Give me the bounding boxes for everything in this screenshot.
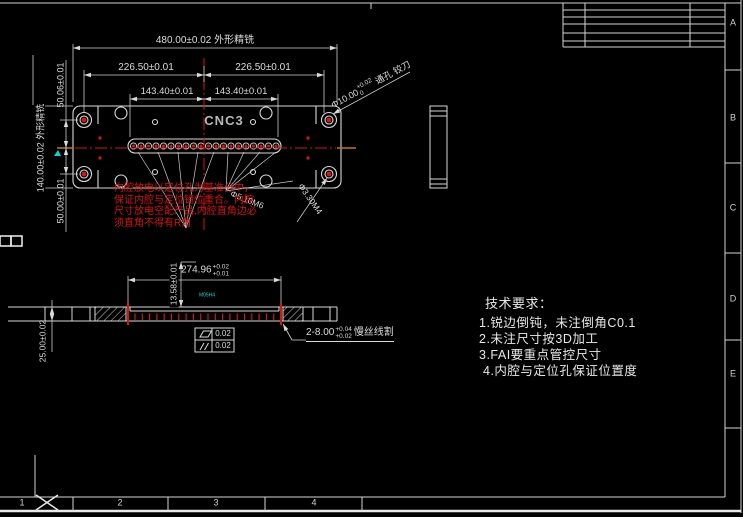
- section-slot-teeth: [135, 314, 274, 321]
- edm-note-line1: 内腔放电以定位孔为基准分中，: [114, 183, 257, 195]
- dim-width-right: 226.50±0.01: [235, 63, 291, 74]
- tech-req-item3: 3.FAI要重点管控尺寸: [479, 347, 637, 363]
- cad-drawing-canvas: 480.00±0.02 外形精铣 226.50±0.01 226.50±0.01…: [0, 0, 743, 517]
- left-center-mark: [0, 236, 22, 246]
- edm-cavity-note: 内腔放电以定位孔为基准分中， 保证内腔与定位销位重合。内腔 尺寸放电空配产品,内…: [114, 183, 257, 229]
- zone-number-3: 3: [213, 498, 218, 507]
- cavity-small-note: M05H4: [199, 293, 215, 298]
- wire-slot-process: 慢丝线割: [354, 328, 394, 339]
- zone-number-1: 1: [19, 498, 24, 507]
- gdt-flatness-value: 0.02: [215, 330, 231, 338]
- dim-height-lower: 50.00±0.01: [56, 179, 65, 224]
- zone-number-2: 2: [117, 498, 122, 507]
- dim-inner-left: 143.40±0.01: [141, 87, 194, 97]
- technical-requirements: 技术要求： 1.锐边倒钝，未注倒角C0.1 2.未注尺寸按3D加工 3.FAI要…: [479, 296, 637, 379]
- side-view: [430, 106, 447, 188]
- dim-width-left: 226.50±0.01: [118, 63, 174, 74]
- cavity-tol-lower: +0.01: [213, 271, 229, 278]
- dim-height-upper: 50.06±0.01: [56, 63, 65, 108]
- wire-slot-marks: [128, 303, 281, 325]
- zone-letter-d: D: [730, 294, 737, 303]
- flatness-symbol: [200, 331, 212, 337]
- dim-thickness: 25.00±0.02: [39, 320, 48, 362]
- wire-slot-tol-lower: +0.02: [335, 334, 351, 341]
- machine-station-label: CNC3: [204, 114, 243, 128]
- edm-note-line3: 尺寸放电空配产品,内腔直角边必: [114, 206, 257, 218]
- tech-req-title: 技术要求：: [479, 296, 637, 312]
- gdt-parallelism-value: 0.02: [215, 342, 231, 350]
- dim-overall-width: 480.00±0.02 外形精铣: [156, 36, 254, 47]
- zone-letter-b: B: [730, 113, 736, 122]
- zone-letter-c: C: [730, 203, 737, 212]
- edm-note-line2: 保证内腔与定位销位重合。内腔: [114, 195, 257, 207]
- parallelism-symbol: [200, 343, 204, 350]
- zone-letter-a: A: [730, 18, 736, 27]
- wire-slot-callout: 2-8.00+0.04+0.02慢丝线割: [306, 327, 394, 342]
- section-view: [8, 307, 337, 321]
- tech-req-item1: 1.锐边倒钝，未注倒角C0.1: [479, 315, 637, 331]
- cavity-width-value: 274.96: [181, 266, 212, 277]
- tech-req-item2: 2.未注尺寸按3D加工: [479, 331, 637, 347]
- dim-overall-height: 140.00±0.02 外形精铣: [36, 102, 45, 194]
- datum-arrow: [54, 150, 61, 156]
- hatch-right: [283, 308, 303, 322]
- dim-inner-right: 143.40±0.01: [215, 87, 268, 97]
- dim-cavity-depth: 13.58±0.01: [170, 261, 179, 307]
- revision-table: [563, 3, 725, 47]
- dim-cavity-width: 274.96+0.02+0.01: [181, 265, 229, 278]
- zone-letter-e: E: [730, 369, 736, 378]
- zone-number-4: 4: [311, 498, 316, 507]
- wire-slot-size: 2-8.00: [306, 328, 334, 339]
- edm-note-line4: 须直角不得有R角: [114, 218, 257, 230]
- tech-req-item4: 4.内腔与定位孔保证位置度: [479, 363, 637, 379]
- hatch-left: [95, 308, 126, 322]
